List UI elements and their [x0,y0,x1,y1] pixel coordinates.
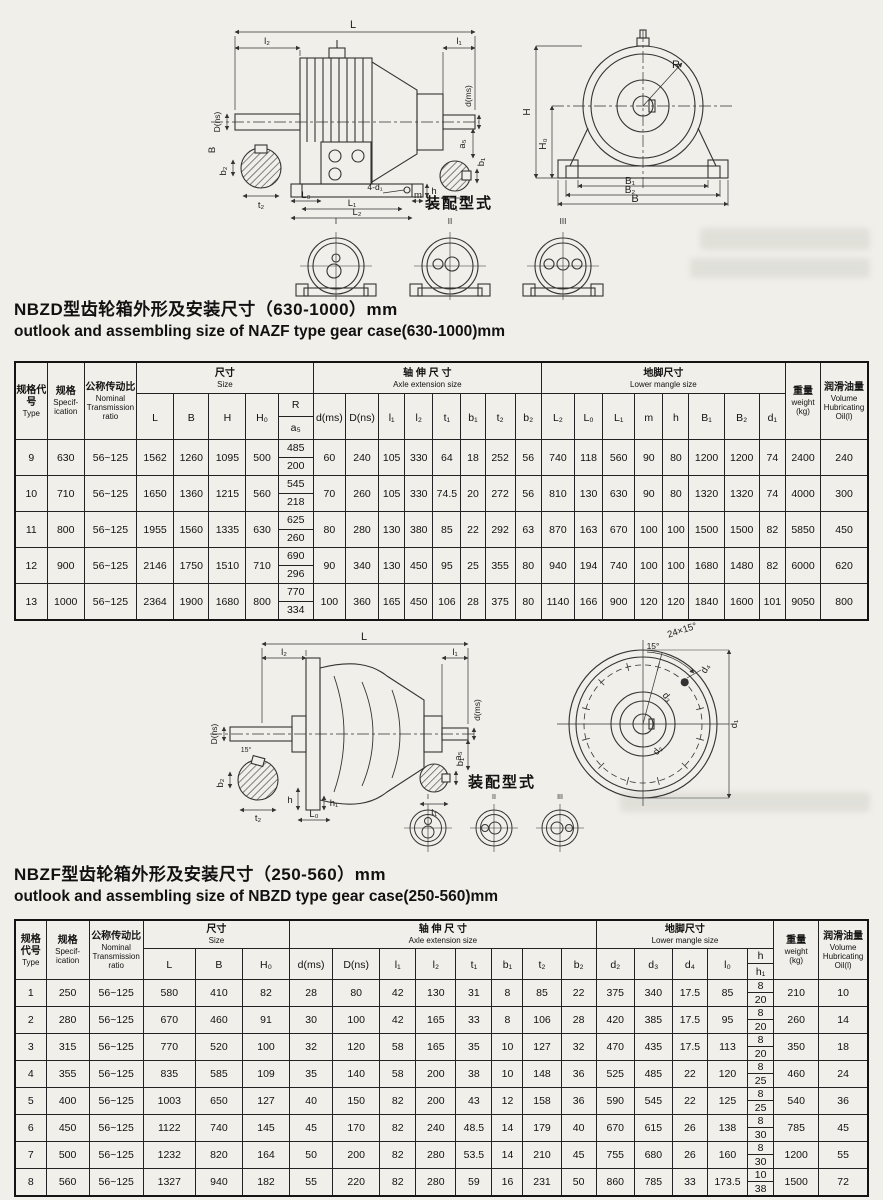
table-cell: 164 [242,1142,289,1169]
column-header: d₄ [672,949,707,980]
table-cell: 150 [333,1088,380,1115]
table-cell: 28 [290,980,333,1007]
table-cell: 130 [575,476,603,512]
table1-body: 963056~125156212601095500485200602401053… [15,440,868,621]
table-cell: 11 [15,512,47,548]
table-cell: 24 [819,1061,868,1088]
table2-body: 125056~125580410822880421303188522375340… [15,980,868,1197]
table-cell: 113 [707,1034,747,1061]
table-cell: 240 [345,440,378,476]
table-cell: 2 [15,1007,46,1034]
dim-label: m [414,190,422,201]
table-cell: 2400 [785,440,820,476]
drawing-nbzd-front-view: H H₀ R B₁ B₂ B [518,16,768,208]
table-cell: 6 [15,1115,46,1142]
table-cell: 165 [379,584,405,621]
table-cell: 36 [819,1088,868,1115]
table-cell: 28 [561,1007,596,1034]
table-cell: 900 [603,584,635,621]
column-header: d(ms) [290,949,333,980]
table-cell: 590 [596,1088,634,1115]
table-cell: 38 [456,1061,492,1088]
dim-label: H₀ [538,138,549,149]
table-cell: 810 [541,476,574,512]
table-cell: 1360 [174,476,209,512]
table-cell: 1327 [143,1169,195,1197]
table-row: 435556~125835585109351405820038101483652… [15,1061,868,1088]
assembly-type-2: II [410,217,490,300]
table-cell: 830 [748,1142,774,1169]
assembly-type-diagrams-1: I II III [282,214,612,302]
table-row: 1071056~12516501360121556054521870260105… [15,476,868,512]
dimension-labels: 24×15° 15° d₄ d₃ d₂ d₁ [647,621,740,758]
scanned-catalog-page: { "s1": { "title_zh": "NBZD型齿轮箱外形及安装尺寸（6… [0,0,883,1200]
table2-header-row-groups: 规格代号Type 规格Specif-ication 公称传动比Nominal T… [15,920,868,949]
table-cell: 680 [634,1142,672,1169]
dim-label: d₄ [699,662,713,676]
table-cell: 200 [416,1061,456,1088]
table-cell: 220 [333,1169,380,1197]
table-cell: 80 [333,980,380,1007]
table-cell: 40 [561,1115,596,1142]
table-cell: 940 [195,1169,242,1197]
table-cell: 260 [345,476,378,512]
table1-header-row-subcolumns: L B H H₀ Ra₅ d(ms) D(ns) l₁ l₂ t₁ b₁ t₂ … [15,394,868,440]
table-cell: 2364 [137,584,174,621]
table-cell: 500 [246,440,278,476]
dim-label: L [361,631,367,643]
table-cell: 1600 [724,584,759,621]
table-cell: 710 [246,548,278,584]
table-cell: 231 [523,1169,561,1197]
table-cell: 74.5 [433,476,461,512]
table-cell: 1562 [137,440,174,476]
table-cell: 1 [15,980,46,1007]
table-cell: 870 [541,512,574,548]
table-cell: 545218 [278,476,313,512]
table-cell: 8 [15,1169,46,1197]
table-cell: 272 [485,476,515,512]
table-cell: 1215 [209,476,246,512]
table-cell: 56~125 [89,1115,143,1142]
table-cell: 40 [290,1088,333,1115]
table-cell: 785 [774,1115,819,1142]
table-cell: 95 [707,1007,747,1034]
table-cell: 55 [290,1169,333,1197]
table-cell: 360 [345,584,378,621]
table-cell: 82 [759,548,785,584]
table-cell: 8 [492,1007,523,1034]
table-cell: 740 [195,1115,242,1142]
table-cell: 820 [748,1034,774,1061]
table-cell: 80 [313,512,345,548]
table-cell: 56~125 [89,1007,143,1034]
column-header: B [174,394,209,440]
column-header-weight: 重量weight(kg) [774,920,819,980]
table-cell: 1955 [137,512,174,548]
table-cell: 4 [15,1061,46,1088]
table-cell: 252 [485,440,515,476]
table-cell: 74 [759,476,785,512]
table-cell: 1510 [209,548,246,584]
table-cell: 56~125 [89,980,143,1007]
table-cell: 292 [485,512,515,548]
column-header-type: 规格代号Type [15,362,47,440]
table-cell: 85 [433,512,461,548]
table-cell: 545 [634,1088,672,1115]
table-cell: 100 [663,512,689,548]
table-cell: 5850 [785,512,820,548]
table-cell: 315 [46,1034,89,1061]
table-cell: 130 [379,512,405,548]
table-cell: 22 [672,1061,707,1088]
table-cell: 33 [672,1169,707,1197]
table-cell: 450 [46,1115,89,1142]
table-cell: 450 [821,512,868,548]
table-cell: 36 [561,1088,596,1115]
column-header-ratio: 公称传动比Nominal Transmission ratio [84,362,136,440]
column-header: d₂ [596,949,634,980]
table-cell: 70 [313,476,345,512]
table-cell: 280 [416,1169,456,1197]
table-cell: 56~125 [89,1061,143,1088]
dim-label: L [350,19,356,31]
section1-title: NBZD型齿轮箱外形及安装尺寸（630-1000）mm outlook and … [14,299,505,342]
dim-label: b₂ [218,166,229,175]
table-cell: 33 [456,1007,492,1034]
table-cell: 1560 [174,512,209,548]
table-cell: 56~125 [89,1169,143,1197]
table-cell: 1320 [724,476,759,512]
table-cell: 17.5 [672,980,707,1007]
table-cell: 830 [748,1115,774,1142]
table-cell: 56~125 [84,584,136,621]
table-row: 125056~125580410822880421303188522375340… [15,980,868,1007]
table-cell: 820 [748,980,774,1007]
table-cell: 280 [416,1142,456,1169]
table-cell: 385 [634,1007,672,1034]
assembly-type-3: III [536,794,584,852]
table-cell: 1000 [47,584,84,621]
table-cell: 560 [603,440,635,476]
table-cell: 5 [15,1088,46,1115]
table-cell: 56~125 [84,440,136,476]
table-cell: 170 [333,1115,380,1142]
table-cell: 800 [821,584,868,621]
table-cell: 1122 [143,1115,195,1142]
table-cell: 800 [47,512,84,548]
table-row: 856056~125132794018255220822805916231508… [15,1169,868,1197]
table-cell: 240 [416,1115,456,1142]
table-cell: 485200 [278,440,313,476]
table-cell: 56~125 [84,548,136,584]
table-cell: 1750 [174,548,209,584]
table-cell: 785 [634,1169,672,1197]
dim-label: t₂ [258,200,265,211]
table-cell: 17.5 [672,1007,707,1034]
table-cell: 485 [634,1061,672,1088]
assembly-type-title-1: 装配型式 [425,192,493,213]
table-cell: 355 [46,1061,89,1088]
table-row: 228056~125670460913010042165338106284203… [15,1007,868,1034]
assembly-type-label: I [335,217,337,226]
table-cell: 179 [523,1115,561,1142]
table-cell: 90 [313,548,345,584]
section2-title-zh: NBZF型齿轮箱外形及安装尺寸（250-560）mm [14,864,498,886]
table-cell: 280 [46,1007,89,1034]
table-cell: 2146 [137,548,174,584]
column-header: B₂ [724,394,759,440]
section1-title-en: outlook and assembling size of NAZF type… [14,321,505,342]
table-cell: 31 [456,980,492,1007]
table-cell: 60 [313,440,345,476]
column-header: d(ms) [313,394,345,440]
table-cell: 1650 [137,476,174,512]
table-cell: 800 [246,584,278,621]
table-cell: 835 [143,1061,195,1088]
table-cell: 82 [380,1169,416,1197]
table-cell: 127 [242,1088,289,1115]
dim-label: L₀ [301,190,310,201]
column-header-h-h1: hh₁ [748,949,774,980]
table-cell: 120 [333,1034,380,1061]
dim-label: H [522,108,533,115]
table-cell: 500 [46,1142,89,1169]
table-cell: 194 [575,548,603,584]
column-header: t₁ [456,949,492,980]
table-cell: 35 [456,1034,492,1061]
table-cell: 48.5 [456,1115,492,1142]
table-cell: 22 [672,1088,707,1115]
table-cell: 6000 [785,548,820,584]
table-cell: 670 [596,1115,634,1142]
table-cell: 127 [523,1034,561,1061]
table-cell: 106 [433,584,461,621]
table-cell: 10 [492,1034,523,1061]
table-cell: 56~125 [89,1088,143,1115]
table-cell: 650 [195,1088,242,1115]
table-cell: 45 [561,1142,596,1169]
dim-label: R [672,59,680,71]
assembly-type-label: I [427,794,429,801]
table-cell: 56 [515,476,541,512]
gearbox-front-outline [552,30,734,188]
table-cell: 300 [821,476,868,512]
table-cell: 56~125 [84,476,136,512]
dimension-lines [227,32,479,218]
column-header: b₂ [515,394,541,440]
table-cell: 82 [759,512,785,548]
group-header-foot: 地脚尺寸Lower mangle size [596,920,773,949]
table-cell: 165 [416,1007,456,1034]
table-cell: 435 [634,1034,672,1061]
table-cell: 560 [246,476,278,512]
table-cell: 350 [774,1034,819,1061]
column-header: t₁ [433,394,461,440]
table-cell: 101 [759,584,785,621]
column-header: L [143,949,195,980]
table-cell: 1480 [724,548,759,584]
table-cell: 72 [819,1169,868,1197]
column-header: l₁ [380,949,416,980]
column-header: B₁ [689,394,724,440]
assembly-type-diagrams-2: I II III [388,792,608,856]
table-cell: 1200 [724,440,759,476]
table-cell: 1500 [689,512,724,548]
dim-label: b₁ [455,758,466,767]
table2-header-row-subcolumns: L B H₀ d(ms) D(ns) l₁ l₂ t₁ b₁ t₂ b₂ d₂ … [15,949,868,980]
table1-header: 规格代号Type 规格Specif-ication 公称传动比Nominal T… [15,362,868,440]
table-cell: 14 [819,1007,868,1034]
table-cell: 340 [345,548,378,584]
dim-label: h [287,795,292,806]
table-cell: 85 [523,980,561,1007]
table-cell: 95 [433,548,461,584]
table-cell: 210 [523,1142,561,1169]
table-cell: 330 [405,440,433,476]
table-cell: 90 [635,440,663,476]
column-header: L [137,394,174,440]
table-cell: 140 [333,1061,380,1088]
table-cell: 690296 [278,548,313,584]
dim-label: d₃ [660,690,674,704]
table-cell: 158 [523,1088,561,1115]
section2-title-en: outlook and assembling size of NBZD type… [14,886,498,907]
table-cell: 585 [195,1061,242,1088]
table-cell: 120 [663,584,689,621]
column-header: t₂ [485,394,515,440]
table-cell: 540 [774,1088,819,1115]
table-cell: 22 [461,512,485,548]
table-cell: 100 [333,1007,380,1034]
table-cell: 375 [596,980,634,1007]
group-header-axle: 轴 伸 尺 寸Axle extension size [313,362,541,394]
table-cell: 18 [819,1034,868,1061]
table-cell: 20 [461,476,485,512]
dimension-labels: H H₀ R B₁ B₂ B [522,59,680,205]
table-cell: 22 [561,980,596,1007]
table-cell: 1680 [209,584,246,621]
column-header-weight: 重量weight(kg) [785,362,820,440]
table-cell: 165 [416,1034,456,1061]
dim-label: l₁ [452,647,457,658]
table-row: 1290056~12521461750151071069029690340130… [15,548,868,584]
dim-label: t₂ [255,813,262,824]
column-header: b₁ [461,394,485,440]
table-cell: 3 [15,1034,46,1061]
table-cell: 1500 [724,512,759,548]
column-header: l₁ [379,394,405,440]
table-cell: 32 [561,1034,596,1061]
dim-label: 15° [647,641,660,651]
table-cell: 85 [707,980,747,1007]
table-cell: 580 [143,980,195,1007]
table-cell: 58 [380,1061,416,1088]
table-cell: 16 [492,1169,523,1197]
dim-label: l₁ [456,36,461,47]
table-cell: 64 [433,440,461,476]
table-cell: 825 [748,1088,774,1115]
table-cell: 1200 [689,440,724,476]
column-header: D(ns) [333,949,380,980]
table-cell: 26 [672,1115,707,1142]
table-cell: 740 [603,548,635,584]
table-cell: 25 [461,548,485,584]
table-cell: 10 [819,980,868,1007]
table-cell: 82 [380,1115,416,1142]
dim-label: d₁ [729,720,740,729]
table-cell: 525 [596,1061,634,1088]
table-cell: 56 [515,440,541,476]
column-header-oil: 润滑油量Volume Hubricating Oil(l) [819,920,868,980]
nbzf-dimension-table: 规格代号Type 规格Specif-ication 公称传动比Nominal T… [14,919,869,1197]
table-cell: 58 [380,1034,416,1061]
table-cell: 450 [405,584,433,621]
table-cell: 56~125 [84,512,136,548]
table-row: 13100056~1252364190016808007703341003601… [15,584,868,621]
dim-label: b₂ [215,778,226,787]
table-cell: 280 [345,512,378,548]
table-cell: 82 [380,1142,416,1169]
column-header-oil: 润滑油量Volume Hubricating Oil(l) [821,362,868,440]
dim-label: B [631,193,638,205]
table-cell: 80 [663,476,689,512]
table-cell: 55 [819,1142,868,1169]
table-cell: 1232 [143,1142,195,1169]
table-row: 750056~1251232820164502008228053.5142104… [15,1142,868,1169]
table-cell: 100 [635,512,663,548]
table-cell: 173.5 [707,1169,747,1197]
table2-header: 规格代号Type 规格Specif-ication 公称传动比Nominal T… [15,920,868,980]
table-cell: 50 [290,1142,333,1169]
table-cell: 630 [246,512,278,548]
section2-title: NBZF型齿轮箱外形及安装尺寸（250-560）mm outlook and a… [14,864,498,907]
table-cell: 9 [15,440,47,476]
table-cell: 80 [515,584,541,621]
table-cell: 460 [195,1007,242,1034]
column-header-type: 规格代号Type [15,920,46,980]
table-row: 540056~125100365012740150822004312158365… [15,1088,868,1115]
dim-label: D(ns) [212,111,222,132]
assembly-type-1: I [296,217,376,300]
table-cell: 250 [46,980,89,1007]
table-row: 963056~125156212601095500485200602401053… [15,440,868,476]
table-cell: 166 [575,584,603,621]
column-header: H₀ [242,949,289,980]
column-header: m [635,394,663,440]
table-cell: 1320 [689,476,724,512]
table-cell: 100 [313,584,345,621]
table-cell: 100 [635,548,663,584]
table-cell: 900 [47,548,84,584]
table-cell: 620 [821,548,868,584]
table-cell: 355 [485,548,515,584]
assembly-type-2: II [470,794,518,852]
table-row: 1180056~12519551560133563062526080280130… [15,512,868,548]
table-cell: 91 [242,1007,289,1034]
table-cell: 630 [47,440,84,476]
column-header-ratio: 公称传动比Nominal Transmission ratio [89,920,143,980]
column-header: b₁ [492,949,523,980]
table-cell: 420 [596,1007,634,1034]
table-cell: 375 [485,584,515,621]
assembly-type-label: II [448,217,452,226]
dim-label: 15° [241,746,252,754]
table-cell: 163 [575,512,603,548]
table-cell: 80 [663,440,689,476]
drawing-nbzf-flange-view: 24×15° 15° d₄ d₃ d₂ d₁ [543,620,768,816]
group-header-axle: 轴 伸 尺 寸Axle extension size [290,920,597,949]
